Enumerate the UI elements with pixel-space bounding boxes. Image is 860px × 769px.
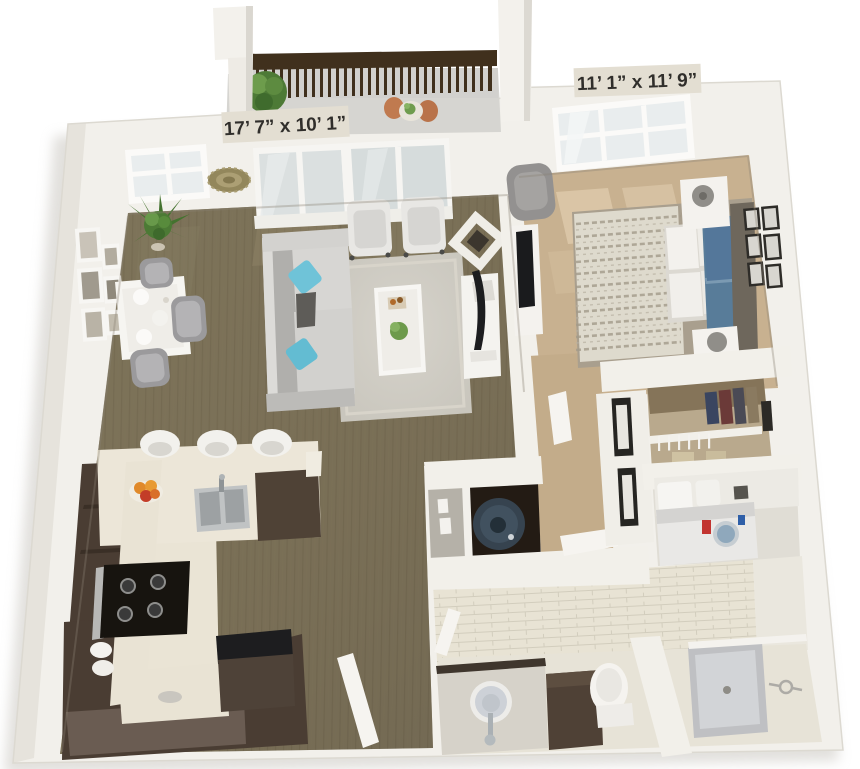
svg-text:11’ 1” x 11’ 9”: 11’ 1” x 11’ 9” (577, 70, 698, 95)
